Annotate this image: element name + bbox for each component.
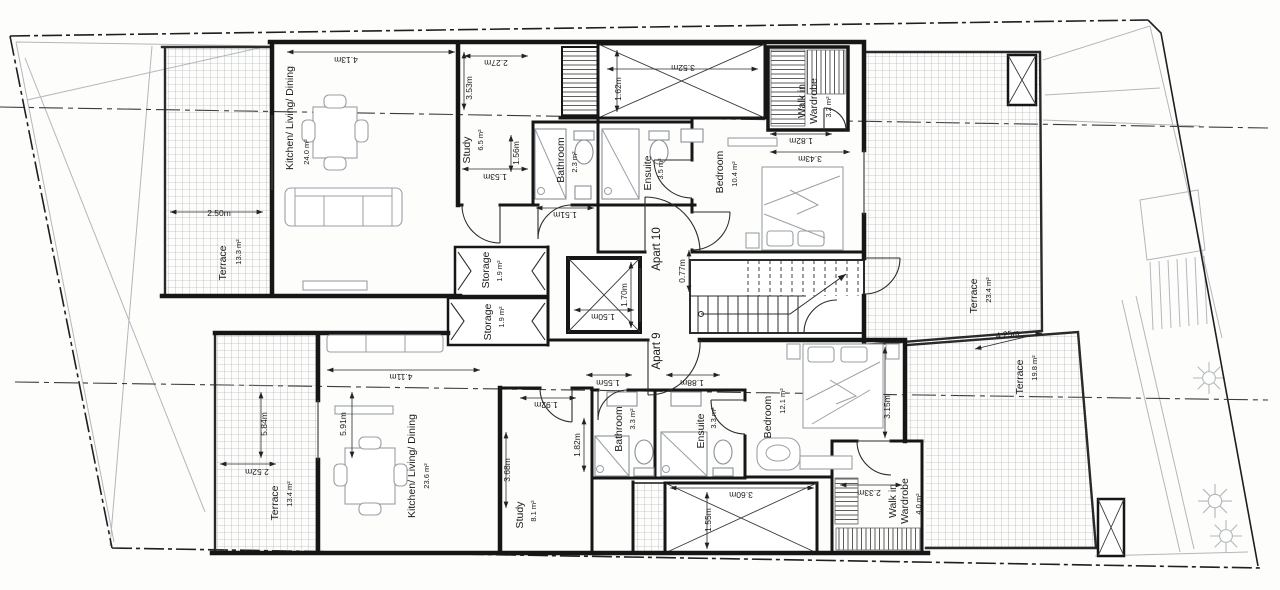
room-walkin-upper-line1: Walk in	[796, 84, 808, 118]
area-bedroom-lower: 12.1 m²	[778, 388, 787, 414]
bed-upper	[746, 167, 843, 250]
dim-3-53m: 3.53m	[464, 76, 474, 100]
dining-set-upper	[302, 95, 368, 170]
area-study-upper: 6.5 m²	[476, 129, 485, 151]
dining-set-lower	[334, 437, 407, 515]
area-kitchen-upper: 24.0 m²	[302, 139, 311, 165]
area-walkin-upper: 3.2 m²	[824, 96, 833, 118]
void-lower	[633, 483, 817, 553]
plants	[1193, 362, 1242, 552]
terrace-lower-right-hatch	[908, 332, 1096, 548]
toilet-lower-ensuite	[713, 440, 733, 476]
terrace-lower-left-hatch	[217, 335, 317, 551]
room-bedroom-lower: Bedroom	[762, 395, 774, 438]
dim-2-50m: 2.50m	[207, 208, 231, 218]
dim-4-11m: 4.11m	[390, 372, 413, 382]
area-kitchen-lower: 23.6 m²	[422, 463, 431, 489]
duct-hatch-upper	[562, 47, 598, 116]
shaft-lower-right	[1098, 499, 1124, 556]
sofa-lower	[327, 335, 443, 352]
area-study-lower: 8.1 m²	[529, 500, 538, 522]
dim-1-56m: 1.56m	[511, 141, 521, 165]
walkin-lower-rail	[836, 528, 920, 550]
area-storage-lower: 1.9 m²	[497, 306, 506, 328]
dim-4-13m: 4.13m	[334, 55, 358, 65]
void-upper	[598, 44, 765, 118]
dim-5-91m: 5.91m	[338, 412, 348, 436]
dim-0-77m: 0.77m	[677, 259, 687, 283]
shower-upper-ensuite	[602, 129, 639, 199]
room-terrace-upper-right: Terrace	[968, 278, 980, 313]
sideboard-upper	[303, 281, 367, 290]
dim-1-62m: 1.62m	[613, 77, 623, 101]
dim-1-50m: 1.50m	[591, 312, 615, 322]
dim-1-53m: 1.53m	[483, 172, 507, 182]
room-walkin-lower-line2: Wardrobe	[899, 478, 911, 524]
dim-2-33m: 2.33m	[857, 488, 881, 498]
dim-3-68m: 3.68m	[502, 458, 512, 482]
area-bedroom-upper: 10.4 m²	[730, 161, 739, 187]
dim-1-82m-upper: 1.82m	[789, 136, 813, 146]
apart-10-label: Apart 10	[651, 227, 663, 270]
area-terrace-lower-right: 19.8 m²	[1030, 355, 1039, 381]
dim-5-84m: 5.84m	[259, 412, 269, 436]
toilet-lower-bathroom	[634, 440, 654, 476]
room-walkin-upper-line2: Wardrobe	[808, 78, 820, 124]
room-bedroom-upper: Bedroom	[714, 150, 726, 193]
area-bathroom-upper: 2.3 m²	[570, 151, 579, 173]
plant-icon	[1193, 362, 1225, 394]
sink-lower-bathroom	[607, 392, 637, 406]
room-storage-upper: Storage	[480, 251, 492, 288]
staircase	[690, 260, 864, 333]
room-storage-lower: Storage	[482, 303, 494, 340]
area-ensuite-upper: 3.5 m²	[656, 158, 665, 180]
dim-3-52m: 3.52m	[671, 63, 695, 73]
apart-9-label: Apart 9	[651, 332, 663, 369]
dim-1-55m-hall: 1.55m	[596, 378, 620, 388]
room-kitchen-living-dining-upper: Kitchen/ Living/ Dining	[284, 66, 296, 170]
dim-1-51m: 1.51m	[553, 210, 577, 220]
room-ensuite-lower: Ensuite	[695, 413, 707, 448]
area-terrace-upper-left: 13.3 m²	[234, 239, 243, 265]
area-bathroom-lower: 3.3 m²	[628, 408, 637, 430]
room-bathroom-lower: Bathroom	[613, 406, 625, 452]
plant-icon	[1210, 520, 1242, 552]
sink-upper-bathroom	[575, 186, 591, 199]
shelf-upper-bedroom	[728, 138, 777, 146]
dim-1-70m: 1.70m	[619, 283, 629, 307]
area-ensuite-lower: 3.3 m²	[709, 407, 718, 429]
dim-3-43m: 3.43m	[798, 154, 822, 164]
dim-3-15m: 3.15m	[882, 395, 892, 419]
room-terrace-upper-left: Terrace	[217, 245, 229, 280]
room-ensuite-upper: Ensuite	[642, 155, 654, 190]
room-study-lower: Study	[514, 501, 526, 529]
dim-1-82m-lower: 1.82m	[572, 433, 582, 457]
sink-upper-ensuite	[681, 129, 703, 142]
area-terrace-upper-right: 23.4 m²	[984, 277, 993, 303]
dim-2-52m: 2.52m	[245, 467, 269, 477]
room-walkin-lower-line1: Walk in	[887, 484, 899, 518]
room-study-upper: Study	[461, 136, 473, 164]
shaft-upper-right	[1008, 55, 1036, 105]
area-storage-upper: 1.9 m²	[495, 260, 504, 282]
room-kitchen-living-dining-lower: Kitchen/ Living/ Dining	[406, 414, 418, 518]
room-terrace-lower-left: Terrace	[269, 485, 281, 520]
sink-lower-ensuite	[671, 392, 701, 406]
dim-1-55m-void: 1.55m	[703, 508, 713, 532]
dim-1-92m: 1.92m	[534, 400, 558, 410]
floor-plan-drawing: Apart 10Apart 9Kitchen/ Living/ DiningTe…	[0, 0, 1280, 590]
plant-icon	[1198, 484, 1232, 518]
room-bathroom-upper: Bathroom	[555, 137, 567, 183]
dim-3-60m: 3.60m	[729, 490, 753, 500]
area-terrace-lower-left: 13.4 m²	[285, 481, 294, 507]
dim-2-27m: 2.27m	[484, 58, 508, 68]
room-terrace-lower-right: Terrace	[1014, 359, 1026, 394]
sofa-upper	[285, 188, 402, 226]
floor-plan-sheet: Apart 10Apart 9Kitchen/ Living/ DiningTe…	[0, 0, 1280, 590]
vanity-lower-bedroom	[757, 438, 852, 470]
dim-1-88m: 1.88m	[680, 378, 704, 388]
area-walkin-lower: 4.0 m²	[914, 493, 923, 515]
